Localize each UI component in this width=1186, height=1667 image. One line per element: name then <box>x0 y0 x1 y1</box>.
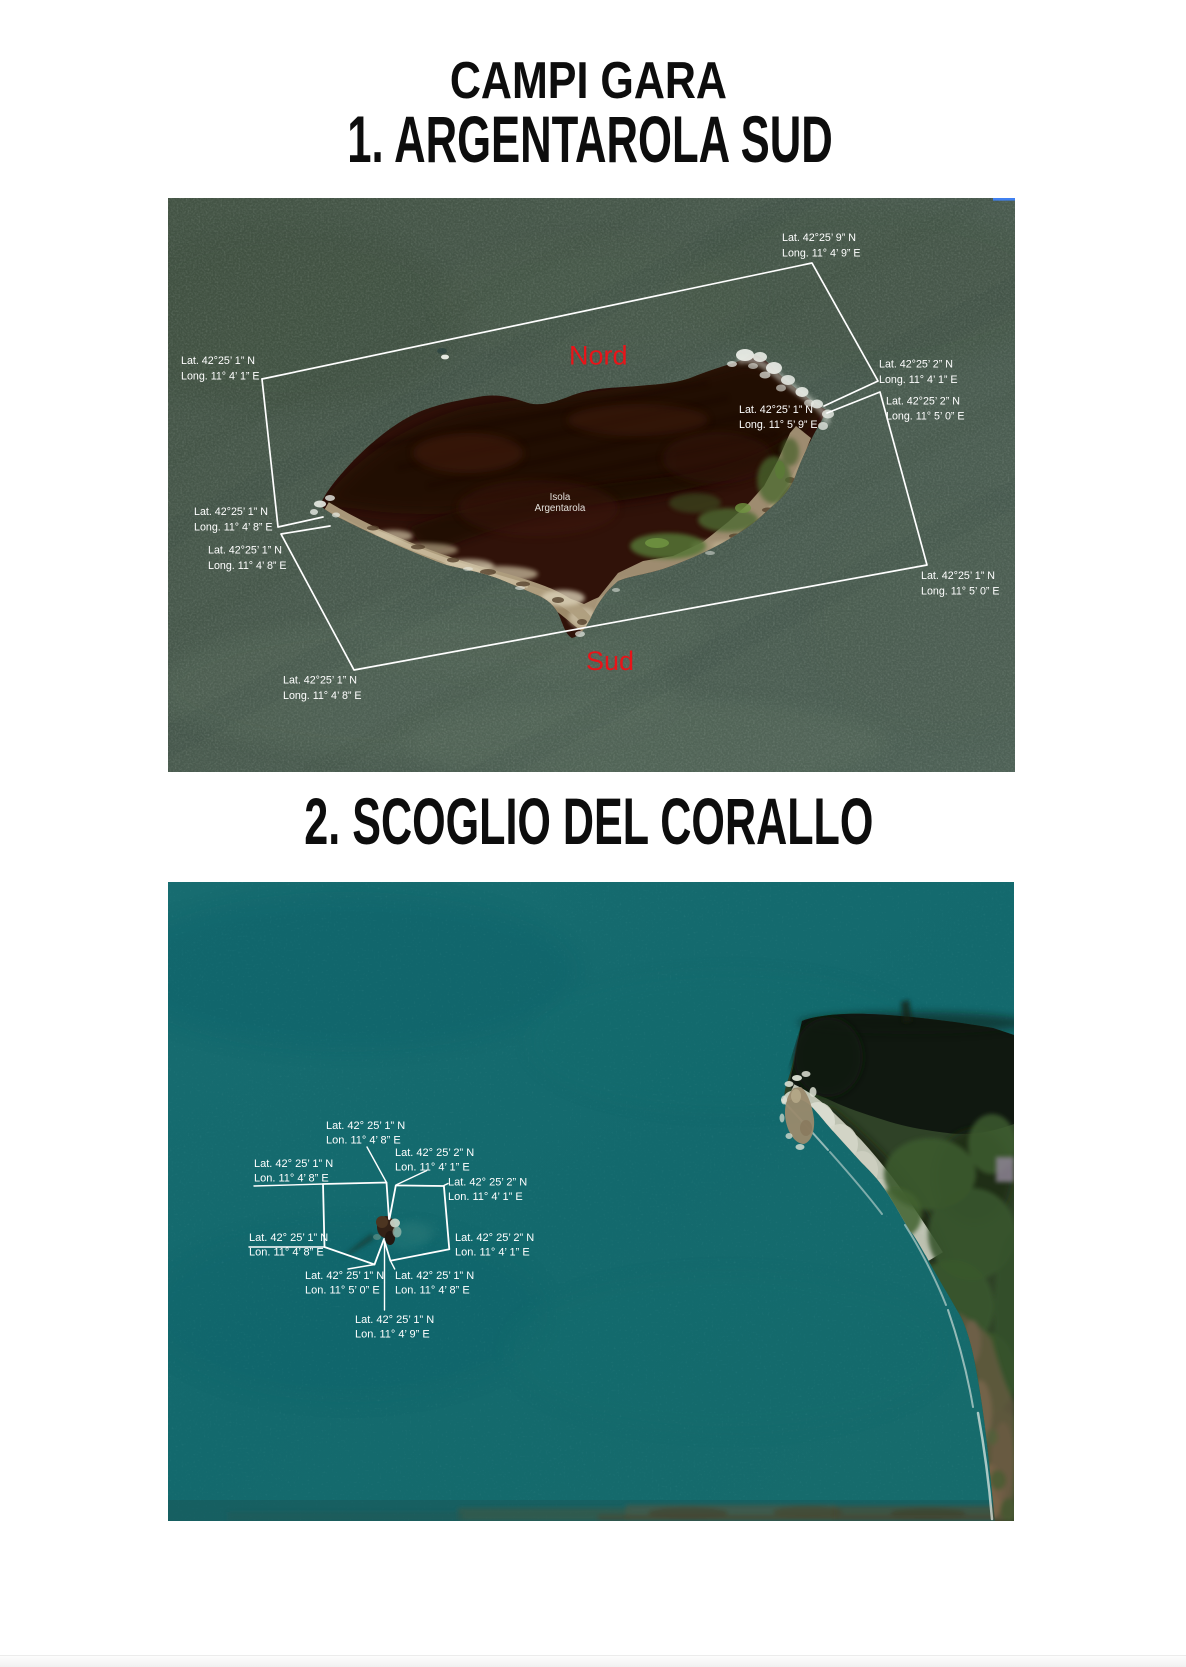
svg-text:Long. 11° 4’ 8” E: Long. 11° 4’ 8” E <box>194 521 273 533</box>
svg-text:Long. 11° 5’ 0” E: Long. 11° 5’ 0” E <box>921 585 1000 597</box>
svg-text:Lat. 42°25’ 1” N: Lat. 42°25’ 1” N <box>921 570 995 582</box>
svg-text:Lat. 42°25’ 2” N: Lat. 42°25’ 2” N <box>879 359 953 371</box>
svg-text:Long. 11° 4’ 8” E: Long. 11° 4’ 8” E <box>208 560 287 572</box>
svg-text:Nord: Nord <box>569 340 628 370</box>
svg-text:Lon. 11° 4’ 8” E: Lon. 11° 4’ 8” E <box>249 1247 324 1259</box>
svg-text:Lat. 42°25’ 2” N: Lat. 42°25’ 2” N <box>886 395 960 407</box>
svg-text:Long. 11° 4’ 8” E: Long. 11° 4’ 8” E <box>283 690 362 702</box>
svg-text:Lat. 42° 25’ 1” N: Lat. 42° 25’ 1” N <box>254 1158 333 1170</box>
svg-text:Lon. 11° 4’ 8” E: Lon. 11° 4’ 8” E <box>326 1135 401 1147</box>
svg-text:Lat. 42°25’ 1” N: Lat. 42°25’ 1” N <box>208 545 282 557</box>
svg-text:Lat. 42° 25’ 2” N: Lat. 42° 25’ 2” N <box>448 1177 527 1189</box>
svg-text:Sud: Sud <box>586 646 634 676</box>
svg-text:Lon. 11° 4’ 1” E: Lon. 11° 4’ 1” E <box>448 1191 523 1203</box>
svg-text:Lon. 11° 4’ 8” E: Lon. 11° 4’ 8” E <box>254 1173 329 1185</box>
svg-text:Argentarola: Argentarola <box>535 503 586 514</box>
svg-text:Isola: Isola <box>550 492 571 503</box>
svg-text:Lon. 11° 4’ 8” E: Lon. 11° 4’ 8” E <box>395 1285 470 1297</box>
svg-text:Lat. 42°25’ 1” N: Lat. 42°25’ 1” N <box>283 675 357 687</box>
svg-text:Long. 11° 4’ 9” E: Long. 11° 4’ 9” E <box>782 247 861 259</box>
svg-text:Lon. 11° 4’ 1” E: Lon. 11° 4’ 1” E <box>395 1162 470 1174</box>
svg-text:Long. 11° 4’ 1” E: Long. 11° 4’ 1” E <box>181 370 260 382</box>
svg-text:Lat. 42°25’ 1” N: Lat. 42°25’ 1” N <box>739 404 813 416</box>
svg-text:Lat. 42° 25’ 2” N: Lat. 42° 25’ 2” N <box>395 1147 474 1159</box>
svg-text:Lat. 42° 25’ 1” N: Lat. 42° 25’ 1” N <box>395 1270 474 1282</box>
svg-text:Lon. 11° 4’ 9” E: Lon. 11° 4’ 9” E <box>355 1329 430 1341</box>
svg-text:Lat. 42° 25’ 1” N: Lat. 42° 25’ 1” N <box>355 1314 434 1326</box>
svg-text:Lat. 42° 25’ 1” N: Lat. 42° 25’ 1” N <box>326 1120 405 1132</box>
svg-text:Lat. 42°25’ 1” N: Lat. 42°25’ 1” N <box>181 355 255 367</box>
svg-text:Lat. 42° 25’ 1” N: Lat. 42° 25’ 1” N <box>249 1232 328 1244</box>
svg-text:Lat. 42°25’ 9” N: Lat. 42°25’ 9” N <box>782 232 856 244</box>
svg-text:Lat. 42°25’ 1” N: Lat. 42°25’ 1” N <box>194 506 268 518</box>
svg-text:Long. 11° 4’ 1” E: Long. 11° 4’ 1” E <box>879 374 958 386</box>
svg-text:Long. 11° 5’ 0” E: Long. 11° 5’ 0” E <box>886 411 965 423</box>
svg-text:Lat. 42° 25’ 1” N: Lat. 42° 25’ 1” N <box>305 1270 384 1282</box>
svg-text:Lon. 11° 4’ 1” E: Lon. 11° 4’ 1” E <box>455 1247 530 1259</box>
svg-text:Lon. 11° 5’ 0” E: Lon. 11° 5’ 0” E <box>305 1285 380 1297</box>
svg-text:Long. 11° 5’ 9” E: Long. 11° 5’ 9” E <box>739 419 818 431</box>
svg-text:Lat. 42° 25’ 2” N: Lat. 42° 25’ 2” N <box>455 1232 534 1244</box>
